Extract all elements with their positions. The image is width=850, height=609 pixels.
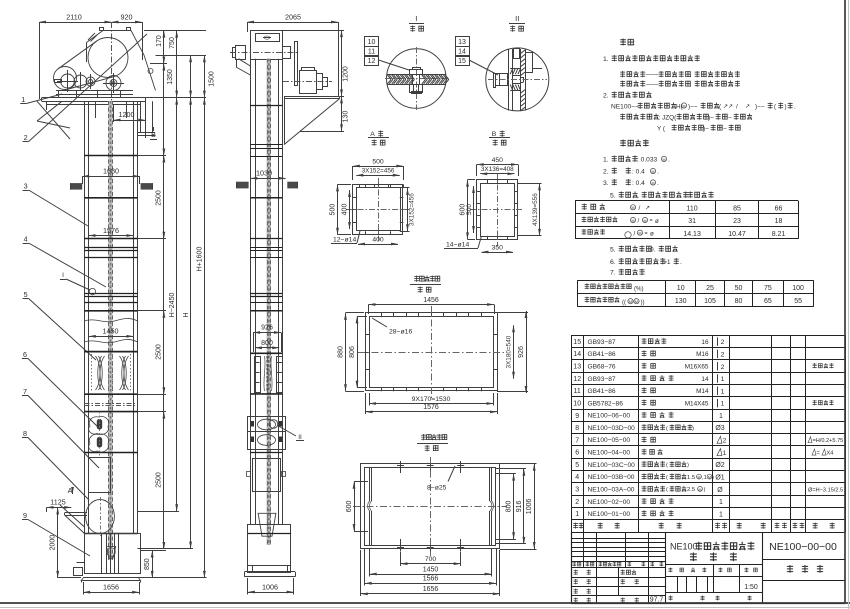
svg-text:B: B bbox=[492, 131, 497, 138]
svg-text:.: . bbox=[680, 259, 682, 266]
svg-text:——: —— bbox=[646, 72, 659, 79]
svg-text:NE100−−: NE100−− bbox=[611, 104, 639, 111]
svg-text:I: I bbox=[62, 272, 64, 279]
svg-text:B: B bbox=[151, 130, 156, 139]
svg-text:↗: ↗ bbox=[645, 206, 650, 212]
svg-text:500: 500 bbox=[466, 204, 473, 215]
svg-text:NE100−00−00: NE100−00−00 bbox=[769, 541, 837, 553]
svg-text:1.: 1. bbox=[603, 157, 609, 164]
svg-text:23: 23 bbox=[733, 218, 741, 225]
svg-text:(: ( bbox=[666, 463, 668, 469]
svg-text:ø: ø bbox=[655, 218, 659, 225]
svg-text:80: 80 bbox=[735, 298, 743, 305]
svg-text:3: 3 bbox=[575, 487, 579, 494]
svg-text:Ø=H−3.15/2.5: Ø=H−3.15/2.5 bbox=[808, 487, 843, 493]
svg-text:110: 110 bbox=[687, 205, 698, 212]
svg-text:11: 11 bbox=[368, 49, 375, 56]
svg-text:8−ø25: 8−ø25 bbox=[427, 485, 447, 492]
svg-text:M: M bbox=[629, 300, 632, 304]
svg-text:65: 65 bbox=[764, 298, 772, 305]
svg-text:1: 1 bbox=[575, 511, 579, 518]
svg-text:750: 750 bbox=[169, 37, 176, 49]
svg-text:3X180=540: 3X180=540 bbox=[506, 335, 513, 368]
svg-text:350: 350 bbox=[492, 245, 504, 252]
svg-text:M: M bbox=[644, 219, 647, 223]
svg-text:)): )) bbox=[641, 299, 645, 306]
svg-text:1566: 1566 bbox=[423, 576, 439, 583]
svg-text:,1: ,1 bbox=[702, 475, 707, 481]
svg-text:−: − bbox=[728, 115, 732, 122]
svg-text:2500: 2500 bbox=[156, 344, 163, 360]
svg-text:/: / bbox=[638, 218, 640, 225]
svg-text:5: 5 bbox=[575, 462, 579, 469]
svg-text:M: M bbox=[698, 475, 701, 479]
svg-text:800: 800 bbox=[506, 500, 513, 512]
svg-text:)−−: )−− bbox=[688, 104, 698, 111]
svg-text:13: 13 bbox=[458, 39, 466, 46]
svg-text:I: I bbox=[415, 14, 417, 23]
svg-text:28−ø16: 28−ø16 bbox=[389, 329, 412, 336]
svg-text:2.: 2. bbox=[603, 169, 609, 176]
svg-text:NE100−03D−00: NE100−03D−00 bbox=[588, 425, 636, 432]
svg-text:M14: M14 bbox=[696, 388, 709, 395]
svg-text:(: ( bbox=[666, 475, 668, 481]
svg-text:(: ( bbox=[666, 487, 668, 493]
svg-text:M16X65: M16X65 bbox=[685, 363, 709, 370]
svg-text:31: 31 bbox=[688, 218, 696, 225]
svg-text:100: 100 bbox=[792, 285, 804, 292]
svg-text:1576: 1576 bbox=[423, 404, 439, 411]
svg-text:M: M bbox=[652, 181, 655, 185]
svg-text:1350: 1350 bbox=[167, 69, 174, 85]
svg-text:105: 105 bbox=[704, 298, 716, 305]
svg-text:)−: )− bbox=[703, 126, 709, 133]
svg-text:(: ( bbox=[666, 426, 668, 432]
svg-text:2500: 2500 bbox=[156, 472, 163, 488]
svg-text:3.: 3. bbox=[603, 180, 609, 187]
svg-text:130: 130 bbox=[675, 298, 687, 305]
svg-text:13: 13 bbox=[573, 364, 581, 371]
svg-text:926: 926 bbox=[261, 324, 273, 331]
svg-text:12: 12 bbox=[573, 376, 581, 383]
svg-text:2: 2 bbox=[723, 438, 727, 445]
svg-text::: : bbox=[712, 193, 714, 200]
svg-text:1: 1 bbox=[719, 413, 723, 420]
svg-text:GB41−86: GB41−86 bbox=[588, 388, 616, 395]
svg-text:5: 5 bbox=[24, 290, 28, 299]
svg-text:75: 75 bbox=[764, 285, 772, 292]
svg-text:800: 800 bbox=[261, 340, 273, 347]
svg-text:14: 14 bbox=[573, 351, 581, 358]
svg-text:25: 25 bbox=[706, 285, 714, 292]
svg-text:1: 1 bbox=[723, 450, 727, 457]
svg-text:0.: 0. bbox=[650, 247, 656, 254]
svg-text:1: 1 bbox=[21, 95, 25, 104]
svg-text:1680: 1680 bbox=[103, 167, 119, 176]
svg-text:806: 806 bbox=[349, 346, 356, 358]
svg-text:4: 4 bbox=[24, 235, 28, 244]
svg-text:GB93−87: GB93−87 bbox=[588, 339, 616, 346]
svg-text:1125: 1125 bbox=[50, 498, 65, 507]
svg-text:M16: M16 bbox=[696, 351, 709, 358]
svg-text:916: 916 bbox=[516, 500, 523, 512]
svg-text:)−: )− bbox=[708, 115, 714, 122]
svg-text:6.: 6. bbox=[610, 259, 616, 266]
svg-text:Ø1: Ø1 bbox=[715, 474, 724, 481]
svg-text:3X136=408: 3X136=408 bbox=[481, 166, 514, 173]
svg-text:12−ø14: 12−ø14 bbox=[333, 237, 356, 244]
svg-text:/: / bbox=[736, 104, 738, 111]
svg-text:↗↗: ↗↗ bbox=[723, 104, 733, 110]
svg-text:A: A bbox=[370, 131, 375, 138]
svg-text:1500: 1500 bbox=[209, 71, 216, 87]
svg-text:: 0.4: : 0.4 bbox=[632, 180, 645, 187]
svg-text:18: 18 bbox=[775, 218, 783, 225]
svg-text:.: . bbox=[794, 104, 796, 111]
svg-text:450: 450 bbox=[492, 157, 504, 164]
svg-text:1200: 1200 bbox=[119, 110, 135, 119]
svg-text:): ) bbox=[704, 487, 706, 493]
svg-text:NE100−03C−00: NE100−03C−00 bbox=[588, 462, 636, 469]
svg-text:400: 400 bbox=[372, 236, 384, 243]
svg-text:NE100−03A−00: NE100−03A−00 bbox=[588, 486, 635, 493]
svg-text:12: 12 bbox=[368, 58, 376, 65]
svg-text:9: 9 bbox=[23, 511, 27, 520]
svg-text:5.: 5. bbox=[610, 193, 616, 200]
svg-text:II: II bbox=[298, 434, 302, 441]
svg-text:15: 15 bbox=[573, 339, 581, 346]
svg-text:1656: 1656 bbox=[423, 586, 439, 593]
svg-text:2: 2 bbox=[24, 133, 28, 142]
svg-text:500: 500 bbox=[330, 204, 337, 216]
svg-text:1: 1 bbox=[721, 401, 725, 408]
svg-text:NE100−05−00: NE100−05−00 bbox=[588, 437, 631, 444]
svg-text:7: 7 bbox=[23, 387, 27, 396]
svg-text::: : bbox=[647, 141, 649, 148]
svg-text:10: 10 bbox=[677, 285, 685, 292]
svg-text:M14X45: M14X45 bbox=[685, 400, 709, 407]
svg-text:M: M bbox=[632, 206, 635, 210]
svg-text:1450: 1450 bbox=[423, 566, 439, 573]
svg-text:M: M bbox=[639, 232, 642, 236]
svg-text:1: 1 bbox=[719, 511, 723, 518]
svg-text:Ø: Ø bbox=[717, 487, 723, 494]
svg-text:11: 11 bbox=[574, 388, 581, 395]
svg-text:6: 6 bbox=[575, 450, 579, 457]
svg-text:.: . bbox=[668, 157, 670, 164]
svg-text:)−−: )−− bbox=[755, 104, 765, 111]
svg-text:>1: >1 bbox=[663, 259, 671, 266]
svg-text:M: M bbox=[663, 158, 666, 162]
svg-text:H−2450: H−2450 bbox=[169, 293, 176, 318]
svg-text:3X152=456: 3X152=456 bbox=[409, 193, 416, 226]
svg-text:M: M bbox=[632, 219, 635, 223]
svg-text:GB68−76: GB68−76 bbox=[588, 363, 616, 370]
svg-text:): ) bbox=[785, 104, 787, 111]
svg-text:8.21: 8.21 bbox=[772, 231, 786, 238]
svg-text:1.: 1. bbox=[603, 56, 609, 63]
svg-text:7: 7 bbox=[575, 437, 579, 444]
svg-text:NE100−04−00: NE100−04−00 bbox=[588, 450, 631, 457]
svg-text:NE100: NE100 bbox=[670, 542, 698, 552]
svg-text:(%): (%) bbox=[634, 286, 644, 293]
svg-text:1:50: 1:50 bbox=[744, 584, 758, 591]
svg-text:: JZQ(: : JZQ( bbox=[659, 115, 678, 122]
svg-text:600: 600 bbox=[346, 500, 353, 512]
svg-text:16: 16 bbox=[701, 339, 709, 346]
svg-text:700: 700 bbox=[425, 556, 437, 563]
svg-text:14: 14 bbox=[701, 376, 709, 383]
svg-text:ø: ø bbox=[650, 231, 654, 238]
svg-text:/: / bbox=[634, 230, 636, 237]
svg-text:8: 8 bbox=[23, 429, 27, 438]
svg-text:H: H bbox=[183, 312, 190, 317]
svg-text:↗: ↗ bbox=[745, 104, 750, 110]
svg-text:——: —— bbox=[646, 81, 659, 88]
svg-text:GB5782−86: GB5782−86 bbox=[588, 400, 624, 407]
svg-text:3: 3 bbox=[24, 182, 28, 191]
svg-text:926: 926 bbox=[518, 346, 525, 358]
svg-text:NE100−06−00: NE100−06−00 bbox=[588, 413, 631, 420]
svg-text:2110: 2110 bbox=[66, 13, 81, 22]
svg-text:NE100−02−00: NE100−02−00 bbox=[588, 499, 631, 506]
svg-text:400: 400 bbox=[342, 204, 349, 216]
svg-text:/: / bbox=[639, 205, 641, 212]
svg-text:1: 1 bbox=[721, 388, 725, 395]
svg-text:2: 2 bbox=[575, 499, 579, 506]
svg-text:50: 50 bbox=[735, 285, 743, 292]
svg-text:2.: 2. bbox=[603, 93, 609, 100]
svg-text:2065: 2065 bbox=[285, 13, 301, 22]
svg-text:2: 2 bbox=[721, 364, 725, 371]
svg-text:X4: X4 bbox=[827, 451, 834, 457]
svg-text:1576: 1576 bbox=[103, 226, 119, 235]
svg-text:14.13: 14.13 bbox=[683, 231, 701, 238]
svg-text:1456: 1456 bbox=[423, 297, 439, 304]
svg-text:M: M bbox=[652, 170, 655, 174]
svg-text:850: 850 bbox=[144, 558, 151, 570]
svg-text:130: 130 bbox=[343, 111, 350, 123]
svg-text:: 0.4: : 0.4 bbox=[632, 169, 645, 176]
svg-text:Ø2: Ø2 bbox=[715, 462, 724, 469]
svg-text:6: 6 bbox=[23, 350, 27, 359]
svg-text:NE100−03B−00: NE100−03B−00 bbox=[588, 474, 635, 481]
svg-text:2: 2 bbox=[721, 339, 725, 346]
svg-text:NE100−01−00: NE100−01−00 bbox=[588, 511, 631, 518]
svg-text:.: . bbox=[657, 169, 659, 176]
svg-text:170: 170 bbox=[156, 35, 163, 47]
svg-text:1006: 1006 bbox=[262, 582, 278, 591]
svg-text:): ) bbox=[712, 475, 714, 481]
svg-text:2: 2 bbox=[721, 351, 725, 358]
svg-text:): ) bbox=[687, 463, 689, 469]
svg-text:1200: 1200 bbox=[343, 66, 350, 82]
svg-text:2.5: 2.5 bbox=[687, 487, 695, 493]
svg-text:M: M bbox=[708, 475, 711, 479]
svg-text:85: 85 bbox=[733, 205, 741, 212]
svg-text:1: 1 bbox=[721, 376, 725, 383]
svg-text:M: M bbox=[683, 104, 686, 108]
svg-text:,: , bbox=[637, 193, 639, 200]
svg-text:.: . bbox=[657, 180, 659, 187]
svg-text:1: 1 bbox=[719, 499, 723, 506]
svg-text:14−ø14: 14−ø14 bbox=[446, 242, 469, 249]
svg-text::: : bbox=[633, 40, 635, 47]
svg-text:66: 66 bbox=[775, 205, 783, 212]
svg-text::: : bbox=[643, 270, 645, 277]
svg-text::: : bbox=[649, 93, 651, 100]
svg-text:10: 10 bbox=[573, 400, 581, 407]
svg-text:1030: 1030 bbox=[256, 168, 272, 177]
svg-text:=: = bbox=[817, 451, 820, 457]
svg-text:−: − bbox=[723, 126, 727, 133]
svg-text:M: M bbox=[635, 300, 638, 304]
svg-text:II: II bbox=[515, 14, 519, 23]
svg-text:14: 14 bbox=[458, 49, 466, 56]
svg-text:4: 4 bbox=[575, 474, 579, 481]
svg-text:GB41−86: GB41−86 bbox=[588, 351, 616, 358]
svg-text:GB93−87: GB93−87 bbox=[588, 376, 616, 383]
svg-text:): ) bbox=[692, 426, 694, 432]
svg-text:=H/0.2+5.75: =H/0.2+5.75 bbox=[813, 438, 844, 444]
svg-text:10: 10 bbox=[368, 39, 376, 46]
svg-text:: 0.033: : 0.033 bbox=[637, 157, 657, 164]
svg-text:M: M bbox=[699, 488, 702, 492]
svg-text:1.5: 1.5 bbox=[687, 475, 695, 481]
svg-text:880: 880 bbox=[338, 346, 345, 358]
svg-text:9X170=1530: 9X170=1530 bbox=[412, 396, 451, 403]
svg-text:15: 15 bbox=[458, 58, 466, 65]
svg-text:8: 8 bbox=[575, 425, 579, 432]
svg-text:4X139=556: 4X139=556 bbox=[532, 193, 539, 226]
svg-text:Y (: Y ( bbox=[657, 126, 666, 133]
svg-text:1450: 1450 bbox=[103, 327, 119, 336]
svg-text:500: 500 bbox=[372, 158, 384, 165]
svg-text:55: 55 bbox=[794, 298, 802, 305]
svg-text:1656: 1656 bbox=[103, 583, 119, 592]
svg-text:2500: 2500 bbox=[156, 190, 163, 206]
svg-text:7.: 7. bbox=[610, 270, 616, 277]
svg-text:5.: 5. bbox=[610, 247, 616, 254]
svg-text:2000: 2000 bbox=[50, 535, 57, 551]
svg-text:9: 9 bbox=[575, 413, 579, 420]
svg-text:Ø3: Ø3 bbox=[715, 425, 724, 432]
svg-text:1006: 1006 bbox=[526, 499, 533, 515]
svg-text:10.47: 10.47 bbox=[728, 231, 746, 238]
svg-text:H+1600: H+1600 bbox=[197, 247, 204, 272]
svg-text:920: 920 bbox=[121, 13, 133, 22]
svg-text:3X152=456: 3X152=456 bbox=[362, 168, 395, 175]
svg-text:=: = bbox=[645, 231, 648, 237]
svg-text:=: = bbox=[650, 218, 653, 224]
